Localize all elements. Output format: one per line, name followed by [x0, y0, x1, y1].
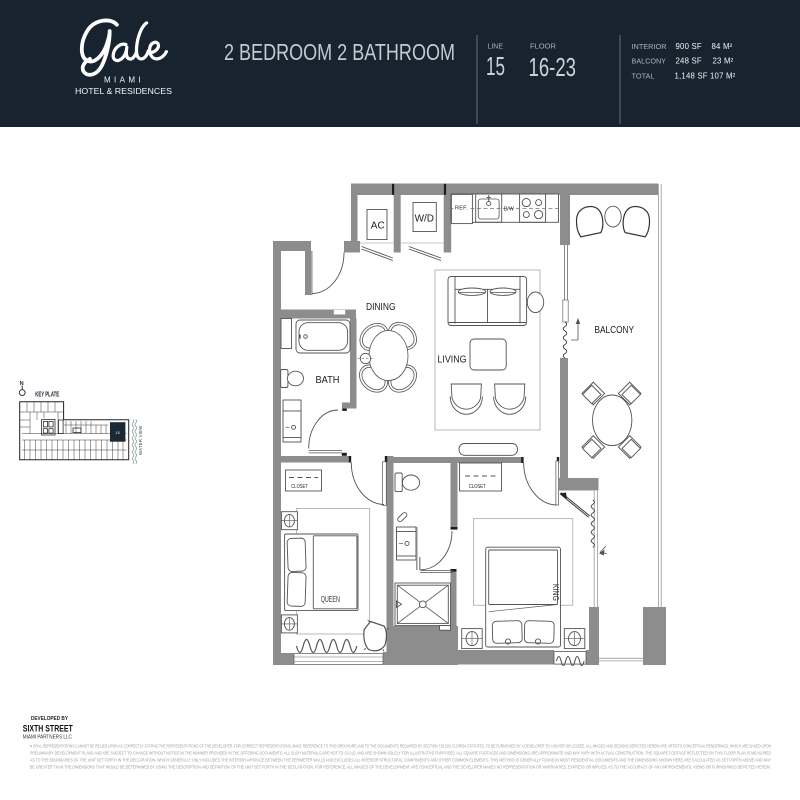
svg-text:AS TO THE BOUNDARIES OF THE UN: AS TO THE BOUNDARIES OF THE UNIT SET FOR…	[30, 758, 772, 763]
svg-text:REF.: REF.	[455, 206, 468, 212]
svg-text:WATER VIEW: WATER VIEW	[138, 425, 143, 455]
svg-text:D/W: D/W	[504, 207, 514, 213]
svg-text:KING: KING	[551, 584, 560, 601]
svg-text:TOTAL: TOTAL	[632, 72, 655, 81]
svg-text:1,148 SF: 1,148 SF	[675, 72, 708, 81]
svg-text:900 SF: 900 SF	[676, 42, 702, 51]
svg-text:LINE: LINE	[488, 42, 504, 51]
svg-text:FLOOR: FLOOR	[530, 42, 556, 51]
svg-text:CLOSET: CLOSET	[469, 484, 486, 490]
svg-text:LIVING: LIVING	[438, 353, 467, 365]
svg-text:MIAMI: MIAMI	[104, 76, 144, 85]
svg-text:AC: AC	[371, 221, 385, 232]
svg-text:SIXTH STREET: SIXTH STREET	[23, 723, 73, 734]
svg-text:● ORAL REPRESENTATIONS CANNOT: ● ORAL REPRESENTATIONS CANNOT BE RELIED …	[30, 744, 771, 749]
svg-text:HOTEL & RESIDENCES: HOTEL & RESIDENCES	[75, 87, 172, 96]
svg-text:84 M²: 84 M²	[712, 42, 733, 51]
svg-text:16-23: 16-23	[529, 52, 577, 82]
svg-text:MIAMI PARTNERS LLC: MIAMI PARTNERS LLC	[23, 734, 72, 740]
svg-text:KEY PLATE: KEY PLATE	[35, 391, 59, 398]
svg-text:248 SF: 248 SF	[676, 57, 702, 66]
svg-text:23 M²: 23 M²	[713, 57, 734, 66]
svg-text:DINING: DINING	[366, 301, 396, 313]
svg-text:107 M²: 107 M²	[710, 72, 736, 81]
svg-text:2 BEDROOM 2 BATHROOM: 2 BEDROOM 2 BATHROOM	[224, 39, 455, 65]
svg-text:BE GREATER THAN THE DIMENSIONS: BE GREATER THAN THE DIMENSIONS THAT WOUL…	[30, 765, 771, 770]
svg-text:DEVELOPED BY: DEVELOPED BY	[31, 716, 68, 722]
svg-text:CLOSET: CLOSET	[291, 484, 308, 490]
svg-text:BALCONY: BALCONY	[595, 324, 635, 336]
svg-text:BATH: BATH	[316, 374, 340, 386]
svg-text:QUEEN: QUEEN	[321, 595, 340, 604]
svg-text:N: N	[20, 381, 24, 387]
svg-text:15: 15	[116, 431, 120, 435]
svg-text:15: 15	[486, 51, 505, 81]
svg-text:BALCONY: BALCONY	[632, 57, 667, 66]
svg-text:W/D: W/D	[415, 214, 434, 225]
svg-text:PRELIMINARY DEVELOPMENT PLANS: PRELIMINARY DEVELOPMENT PLANS AND ARE SU…	[30, 751, 771, 756]
svg-text:INTERIOR: INTERIOR	[632, 42, 667, 51]
